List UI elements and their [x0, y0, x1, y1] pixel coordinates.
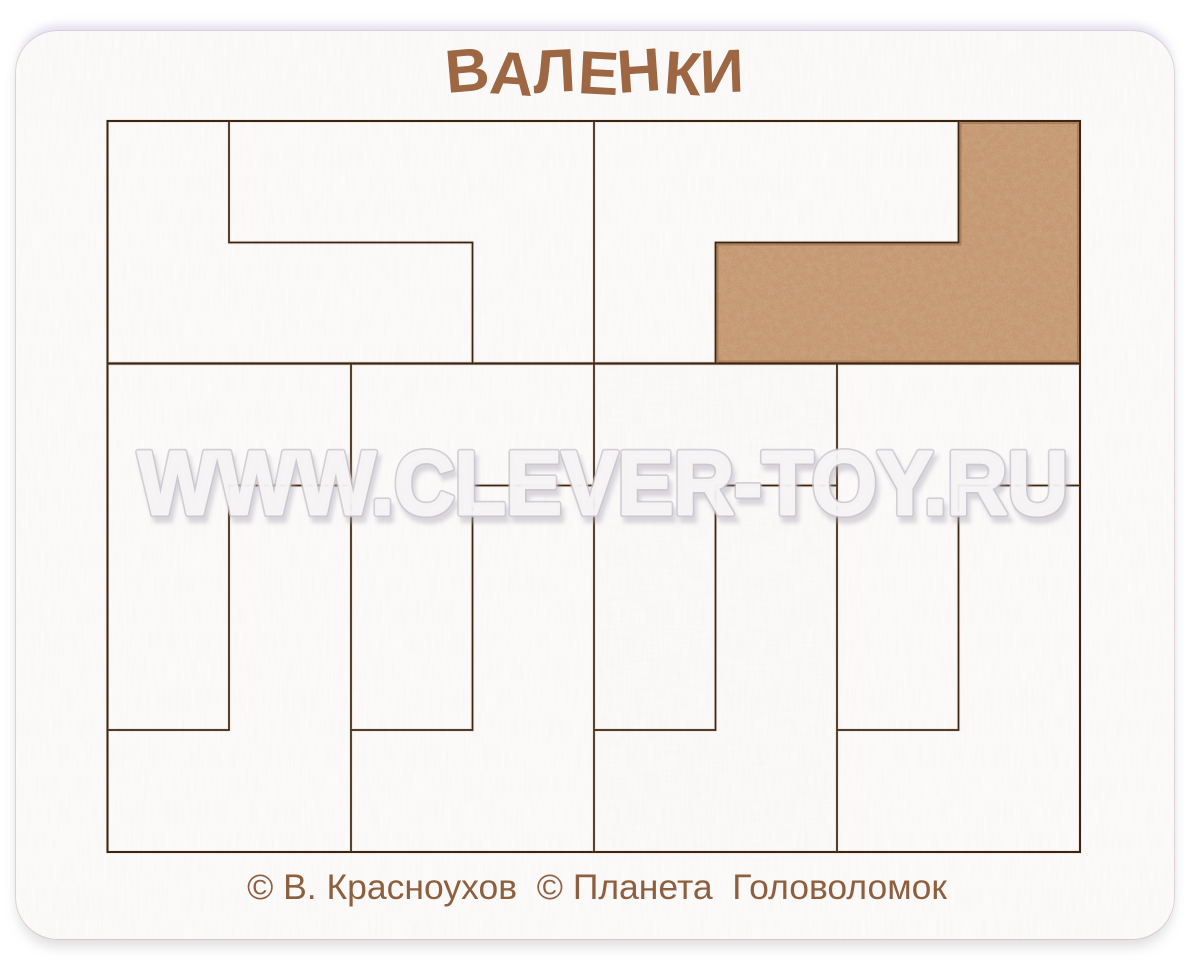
svg-text:© В. Красноухов © Планета Го: © В. Красноухов © Планета Головоломок — [247, 867, 947, 907]
svg-text:WWW.CLEVER-TOY.RU: WWW.CLEVER-TOY.RU — [138, 434, 1068, 534]
